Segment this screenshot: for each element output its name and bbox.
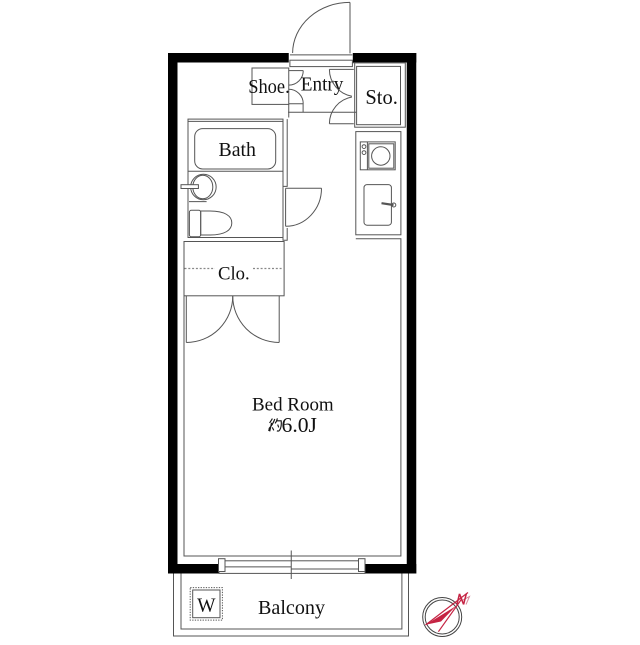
svg-text:W: W	[197, 596, 216, 617]
svg-text:Entry: Entry	[301, 73, 344, 95]
svg-text:Bath: Bath	[219, 140, 257, 161]
svg-text:6.0J: 6.0J	[282, 413, 318, 437]
svg-text:Clo.: Clo.	[218, 263, 250, 284]
svg-text:Balcony: Balcony	[258, 597, 325, 619]
svg-text:Sto.: Sto.	[365, 85, 398, 109]
svg-text:Shoe.: Shoe.	[248, 76, 290, 98]
